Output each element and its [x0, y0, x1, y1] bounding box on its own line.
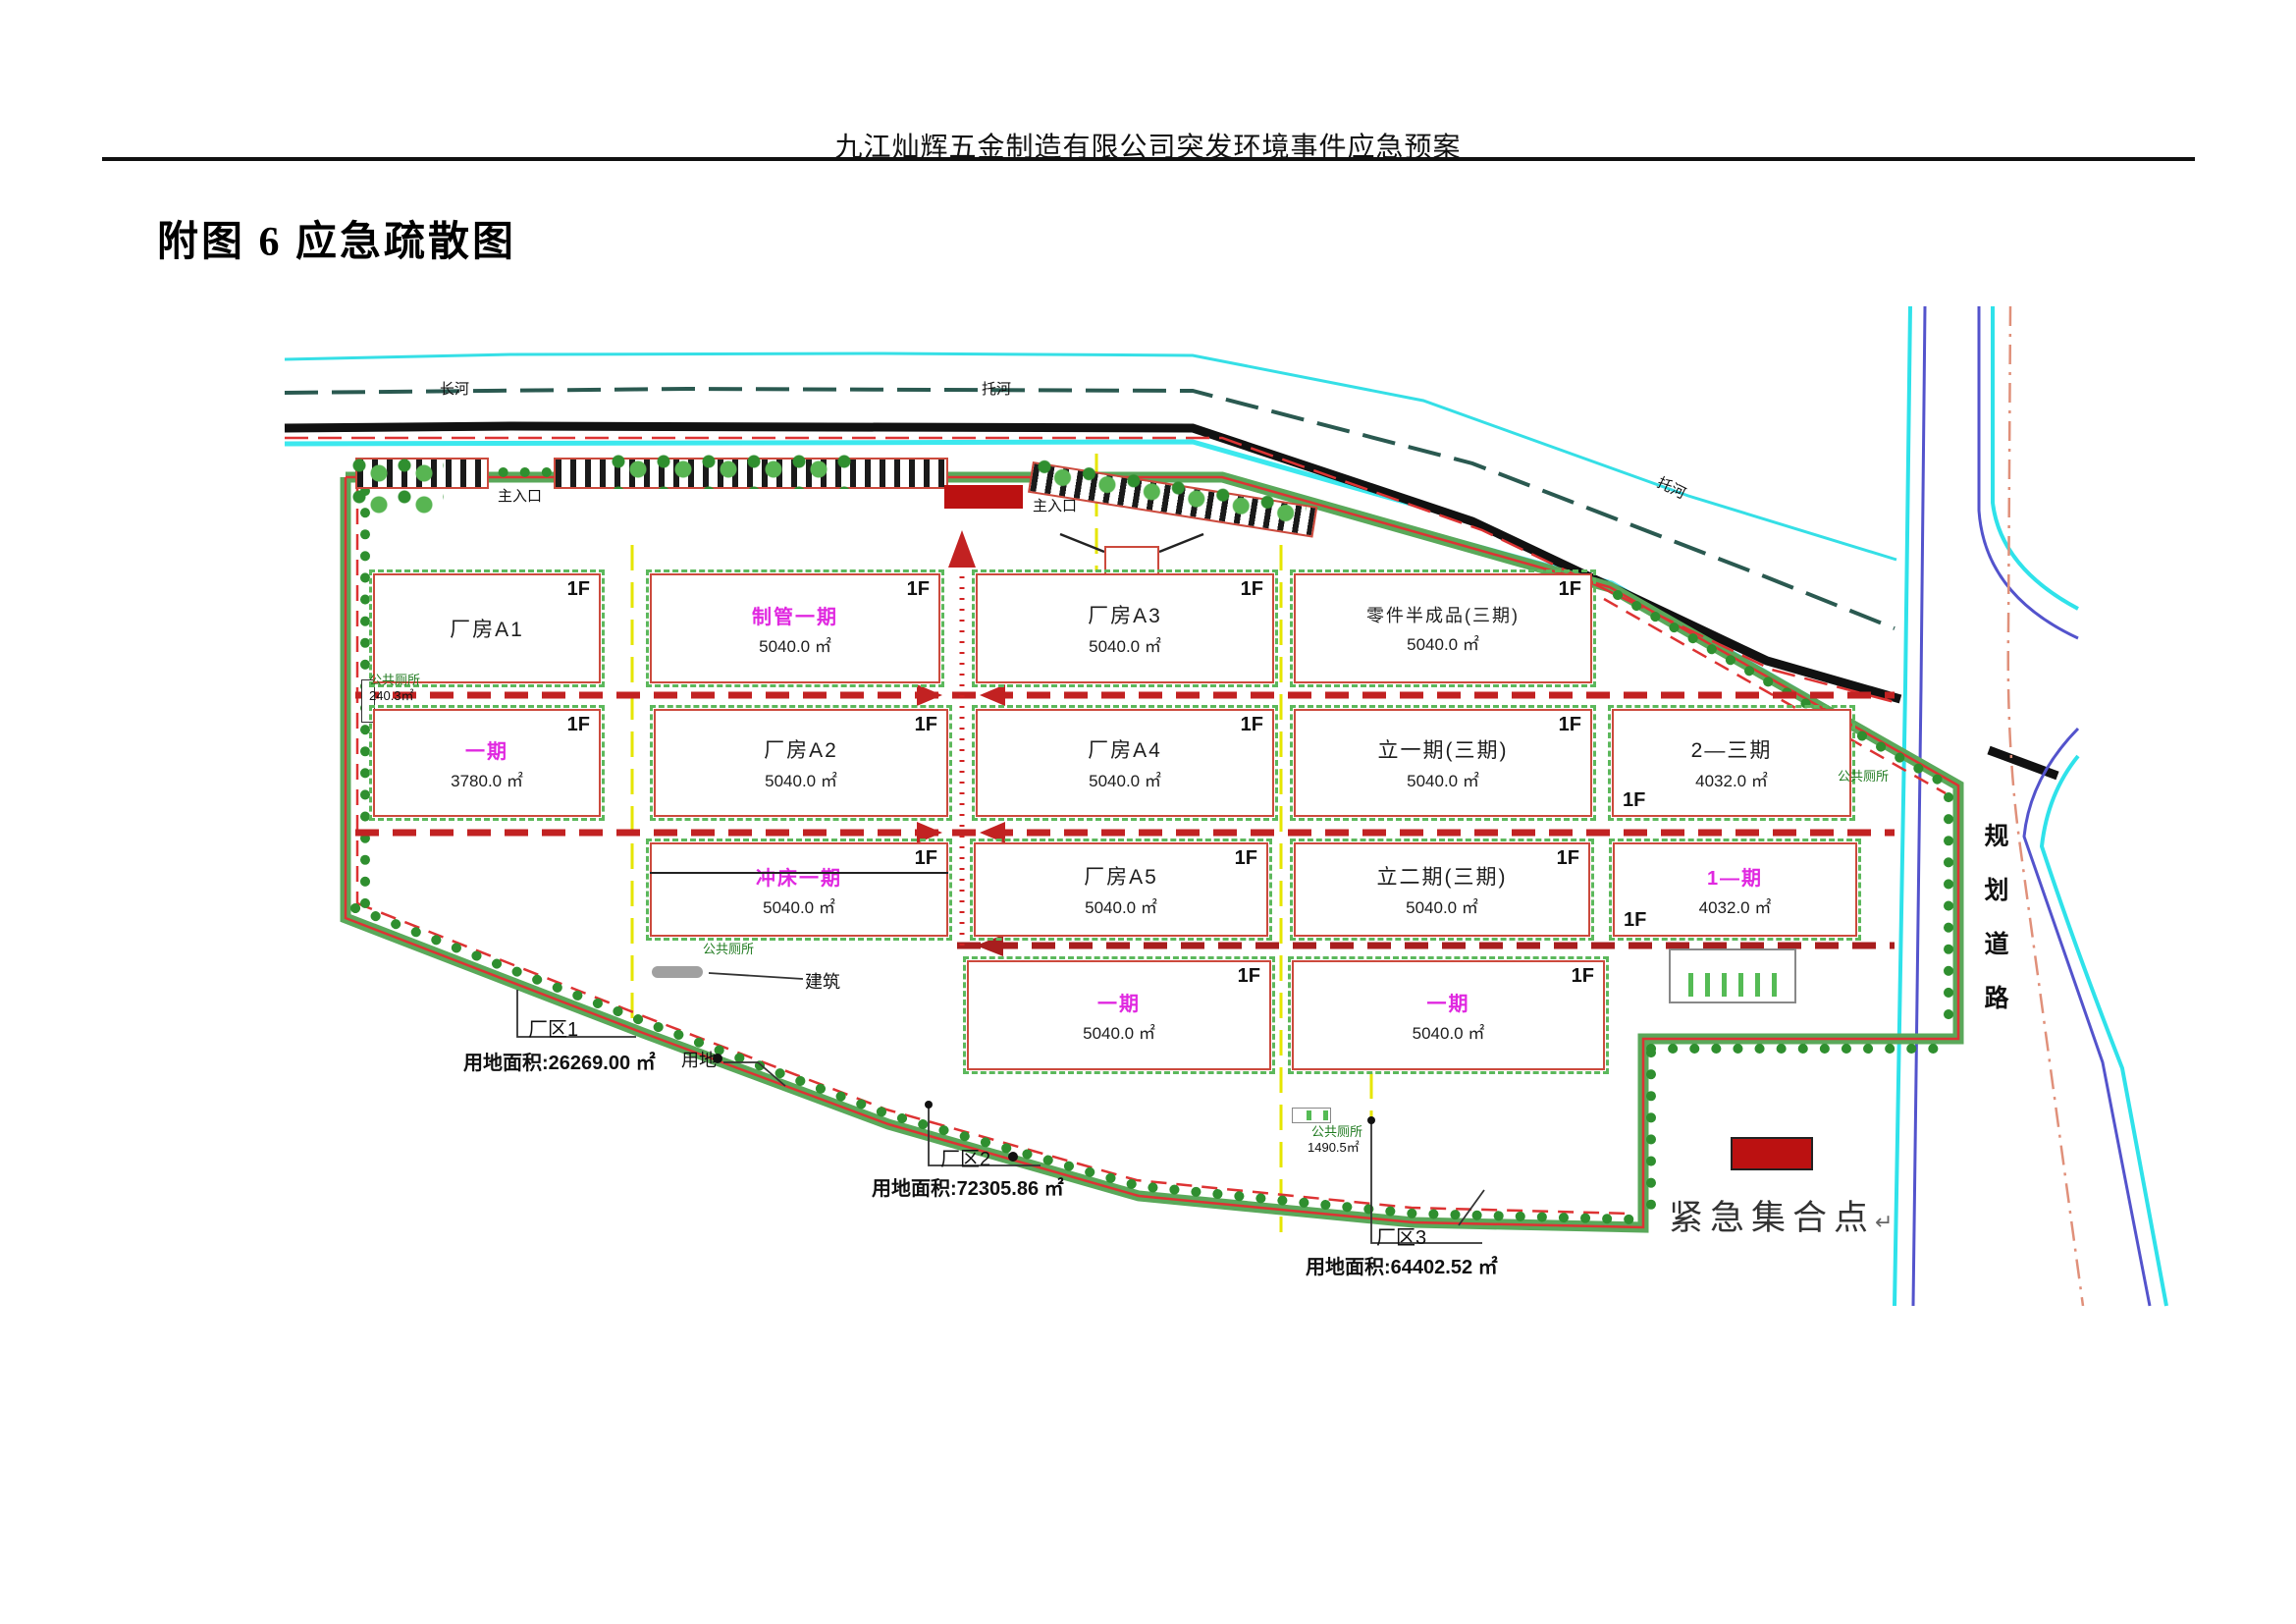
- building-chongchuang: 1F 冲床一期 5040.0 ㎡: [650, 842, 948, 937]
- building-a1: 1F 厂房A1: [373, 573, 601, 683]
- entrance-2-label: 主入口: [1033, 495, 1077, 515]
- building-name: 1—期: [1707, 862, 1763, 891]
- toilet-area-3: 1490.5㎡: [1308, 1137, 1360, 1156]
- building-li-erqi: 1F 立二期(三期) 5040.0 ㎡: [1294, 842, 1590, 937]
- floor-label: 1F: [567, 578, 590, 601]
- greenery-left: [349, 454, 444, 516]
- assembly-marker-top: [944, 485, 1023, 509]
- planned-road-label: 规划道路: [1977, 823, 2012, 1039]
- building-name: 零件半成品(三期): [1366, 602, 1520, 627]
- arrow-left-1: [980, 684, 1005, 706]
- building-area: 5040.0 ㎡: [1089, 632, 1161, 657]
- planned-road-lines: [1895, 306, 2166, 1306]
- toilet-area-1: 240.3㎡: [369, 685, 414, 704]
- building-parts-warehouse: 1F 零件半成品(三期) 5040.0 ㎡: [1294, 573, 1592, 683]
- land-redline-label: 用地: [681, 1047, 717, 1072]
- building-1-qi: 1F 1—期 4032.0 ㎡: [1613, 842, 1857, 937]
- zone1-area: 用地面积:26269.00 ㎡: [463, 1047, 656, 1075]
- building-yiqi-b: 1F 一期 5040.0 ㎡: [1292, 960, 1605, 1070]
- building-area: 5040.0 ㎡: [1085, 893, 1157, 918]
- building-a3: 1F 厂房A3 5040.0 ㎡: [976, 573, 1274, 683]
- building-area: 5040.0 ㎡: [1413, 1019, 1485, 1044]
- zone3-label: 厂区3: [1376, 1221, 1426, 1250]
- toilet-label-2: 公共厕所: [1838, 766, 1889, 785]
- assembly-point-caption: 紧急集合点↵: [1669, 1190, 1893, 1240]
- building-yiqi-a: 1F 一期 5040.0 ㎡: [967, 960, 1271, 1070]
- zone2-label: 厂区2: [940, 1143, 990, 1171]
- floor-label: 1F: [1572, 965, 1594, 988]
- utility-hatch: [1677, 973, 1789, 997]
- building-a5: 1F 厂房A5 5040.0 ㎡: [974, 842, 1268, 937]
- section-line: [650, 872, 948, 874]
- river-label-tuohe-1: 托河: [982, 378, 1011, 399]
- arrow-left-3: [976, 935, 1003, 956]
- building-name: 厂房A3: [1088, 600, 1162, 629]
- building-name: 一期: [465, 735, 508, 764]
- floor-label: 1F: [567, 714, 590, 736]
- assembly-point-label: 紧急集合点: [1669, 1199, 1875, 1237]
- river-label-changhe: 长河: [440, 378, 469, 399]
- building-a2: 1F 厂房A2 5040.0 ㎡: [654, 709, 948, 817]
- zone3-area: 用地面积:64402.52 ㎡: [1306, 1251, 1498, 1279]
- building-yiqi-3780: 1F 一期 3780.0 ㎡: [373, 709, 601, 817]
- floor-label: 1F: [1238, 965, 1260, 988]
- building-area: 4032.0 ㎡: [1699, 893, 1772, 918]
- arrow-right-1: [917, 684, 942, 706]
- building-name: 一期: [1427, 988, 1470, 1016]
- building-area: 5040.0 ㎡: [1407, 767, 1479, 791]
- return-mark: ↵: [1875, 1210, 1893, 1234]
- building-name: 厂房A1: [450, 614, 524, 643]
- grey-bar-legend: [652, 966, 703, 978]
- assembly-point-marker: [1731, 1137, 1813, 1170]
- floor-label: 1F: [1624, 909, 1646, 932]
- building-zhiguan-1: 1F 制管一期 5040.0 ㎡: [650, 573, 940, 683]
- floor-label: 1F: [1559, 714, 1581, 736]
- floor-label: 1F: [1557, 847, 1579, 870]
- building-name: 冲床一期: [756, 862, 842, 891]
- floor-label: 1F: [1623, 789, 1645, 812]
- building-area: 5040.0 ㎡: [763, 893, 835, 918]
- building-name: 一期: [1097, 988, 1141, 1016]
- small-green-hatch: [1295, 1110, 1328, 1120]
- floor-label: 1F: [1241, 714, 1263, 736]
- building-name: 立二期(三期): [1377, 861, 1508, 891]
- building-area: 4032.0 ㎡: [1695, 767, 1768, 791]
- entrance-1-label: 主入口: [498, 485, 542, 506]
- zone1-label: 厂区1: [528, 1013, 578, 1042]
- greenery-mid: [609, 450, 854, 489]
- building-a4: 1F 厂房A4 5040.0 ㎡: [976, 709, 1274, 817]
- arrow-right-2: [917, 822, 942, 843]
- building-name: 厂房A4: [1088, 734, 1162, 764]
- building-area: 5040.0 ㎡: [1407, 630, 1479, 655]
- toilet-label-4: 公共厕所: [703, 939, 754, 957]
- building-name: 2—三期: [1691, 734, 1773, 764]
- building-legend-label: 建筑: [805, 968, 840, 994]
- building-area: 3780.0 ㎡: [451, 767, 523, 791]
- floor-label: 1F: [1235, 847, 1257, 870]
- floor-label: 1F: [1559, 578, 1581, 601]
- building-area: 5040.0 ㎡: [1089, 767, 1161, 791]
- floor-label: 1F: [915, 714, 937, 736]
- building-name: 厂房A5: [1084, 861, 1158, 891]
- building-name: 制管一期: [752, 601, 838, 629]
- building-li-yiqi: 1F 立一期(三期) 5040.0 ㎡: [1294, 709, 1592, 817]
- building-area: 5040.0 ㎡: [1406, 893, 1478, 918]
- arrow-left-2: [980, 822, 1005, 843]
- building-area: 5040.0 ㎡: [765, 767, 837, 791]
- zone2-area: 用地面积:72305.86 ㎡: [872, 1172, 1064, 1201]
- building-name: 立一期(三期): [1378, 734, 1509, 764]
- building-area: 5040.0 ㎡: [1083, 1019, 1155, 1044]
- arrow-up: [948, 530, 976, 568]
- floor-label: 1F: [1241, 578, 1263, 601]
- floor-label: 1F: [915, 847, 937, 870]
- building-name: 厂房A2: [764, 734, 838, 764]
- building-2-sanqi: 1F 2—三期 4032.0 ㎡: [1612, 709, 1851, 817]
- utility-structure: [1669, 948, 1796, 1003]
- building-area: 5040.0 ㎡: [759, 632, 831, 657]
- floor-label: 1F: [907, 578, 930, 601]
